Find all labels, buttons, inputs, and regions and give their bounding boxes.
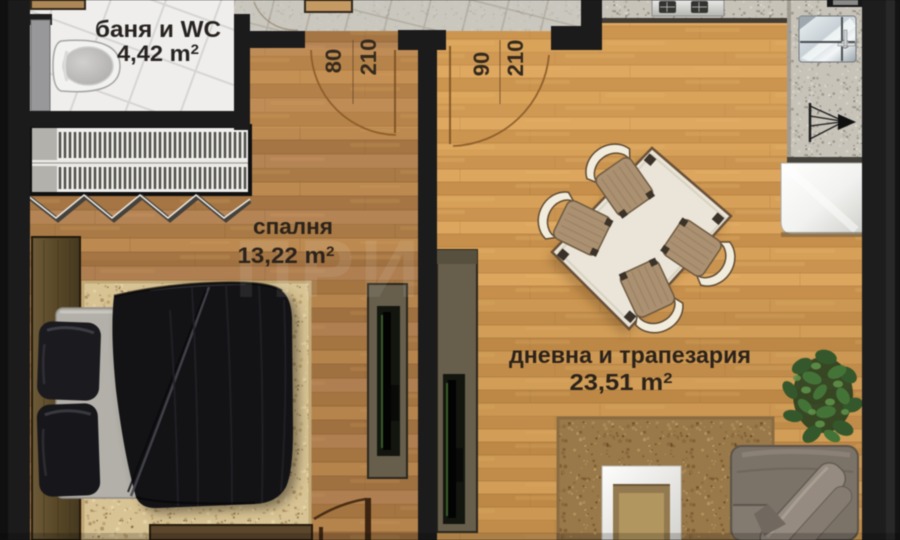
svg-text:80: 80 [321, 49, 346, 73]
svg-text:90: 90 [469, 52, 494, 76]
svg-text:спалня: спалня [253, 214, 333, 239]
svg-text:210: 210 [356, 39, 381, 76]
svg-text:13,22 m2: 13,22 m2 [238, 243, 335, 268]
svg-text:23,51 m2: 23,51 m2 [570, 369, 673, 395]
svg-text:4,42 m2: 4,42 m2 [117, 41, 199, 66]
svg-text:дневна и трапезария: дневна и трапезария [509, 342, 751, 368]
svg-text:баня и WC: баня и WC [95, 16, 221, 42]
svg-text:210: 210 [503, 40, 528, 77]
